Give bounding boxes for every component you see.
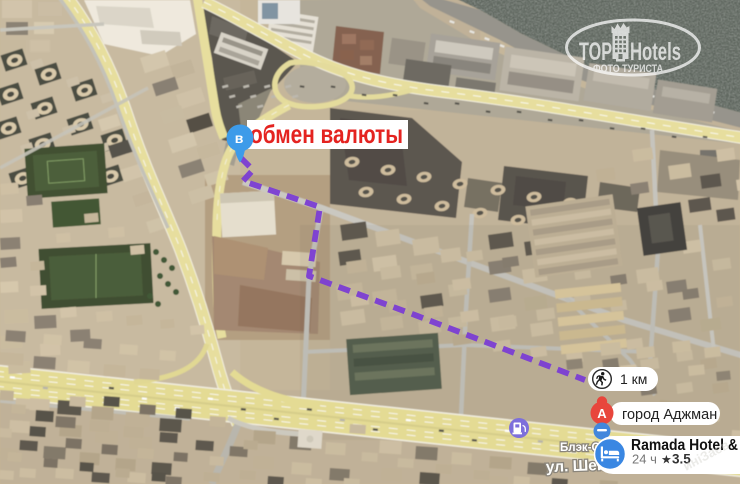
svg-text:1 км: 1 км xyxy=(620,371,647,387)
svg-text:TOP: TOP xyxy=(579,38,612,66)
svg-text:город Аджман: город Аджман xyxy=(622,407,717,423)
svg-text:24 ч: 24 ч xyxy=(632,452,657,467)
svg-text:A: A xyxy=(597,406,607,421)
svg-text:Hotels: Hotels xyxy=(630,38,681,66)
svg-text:в: в xyxy=(235,130,244,146)
svg-text:обмен валюты: обмен валюты xyxy=(250,119,403,149)
svg-text:ФОТО ТУРИСТА: ФОТО ТУРИСТА xyxy=(593,63,663,75)
svg-text:★: ★ xyxy=(661,453,672,467)
svg-text:Блэк-С: Блэк-С xyxy=(560,442,600,454)
